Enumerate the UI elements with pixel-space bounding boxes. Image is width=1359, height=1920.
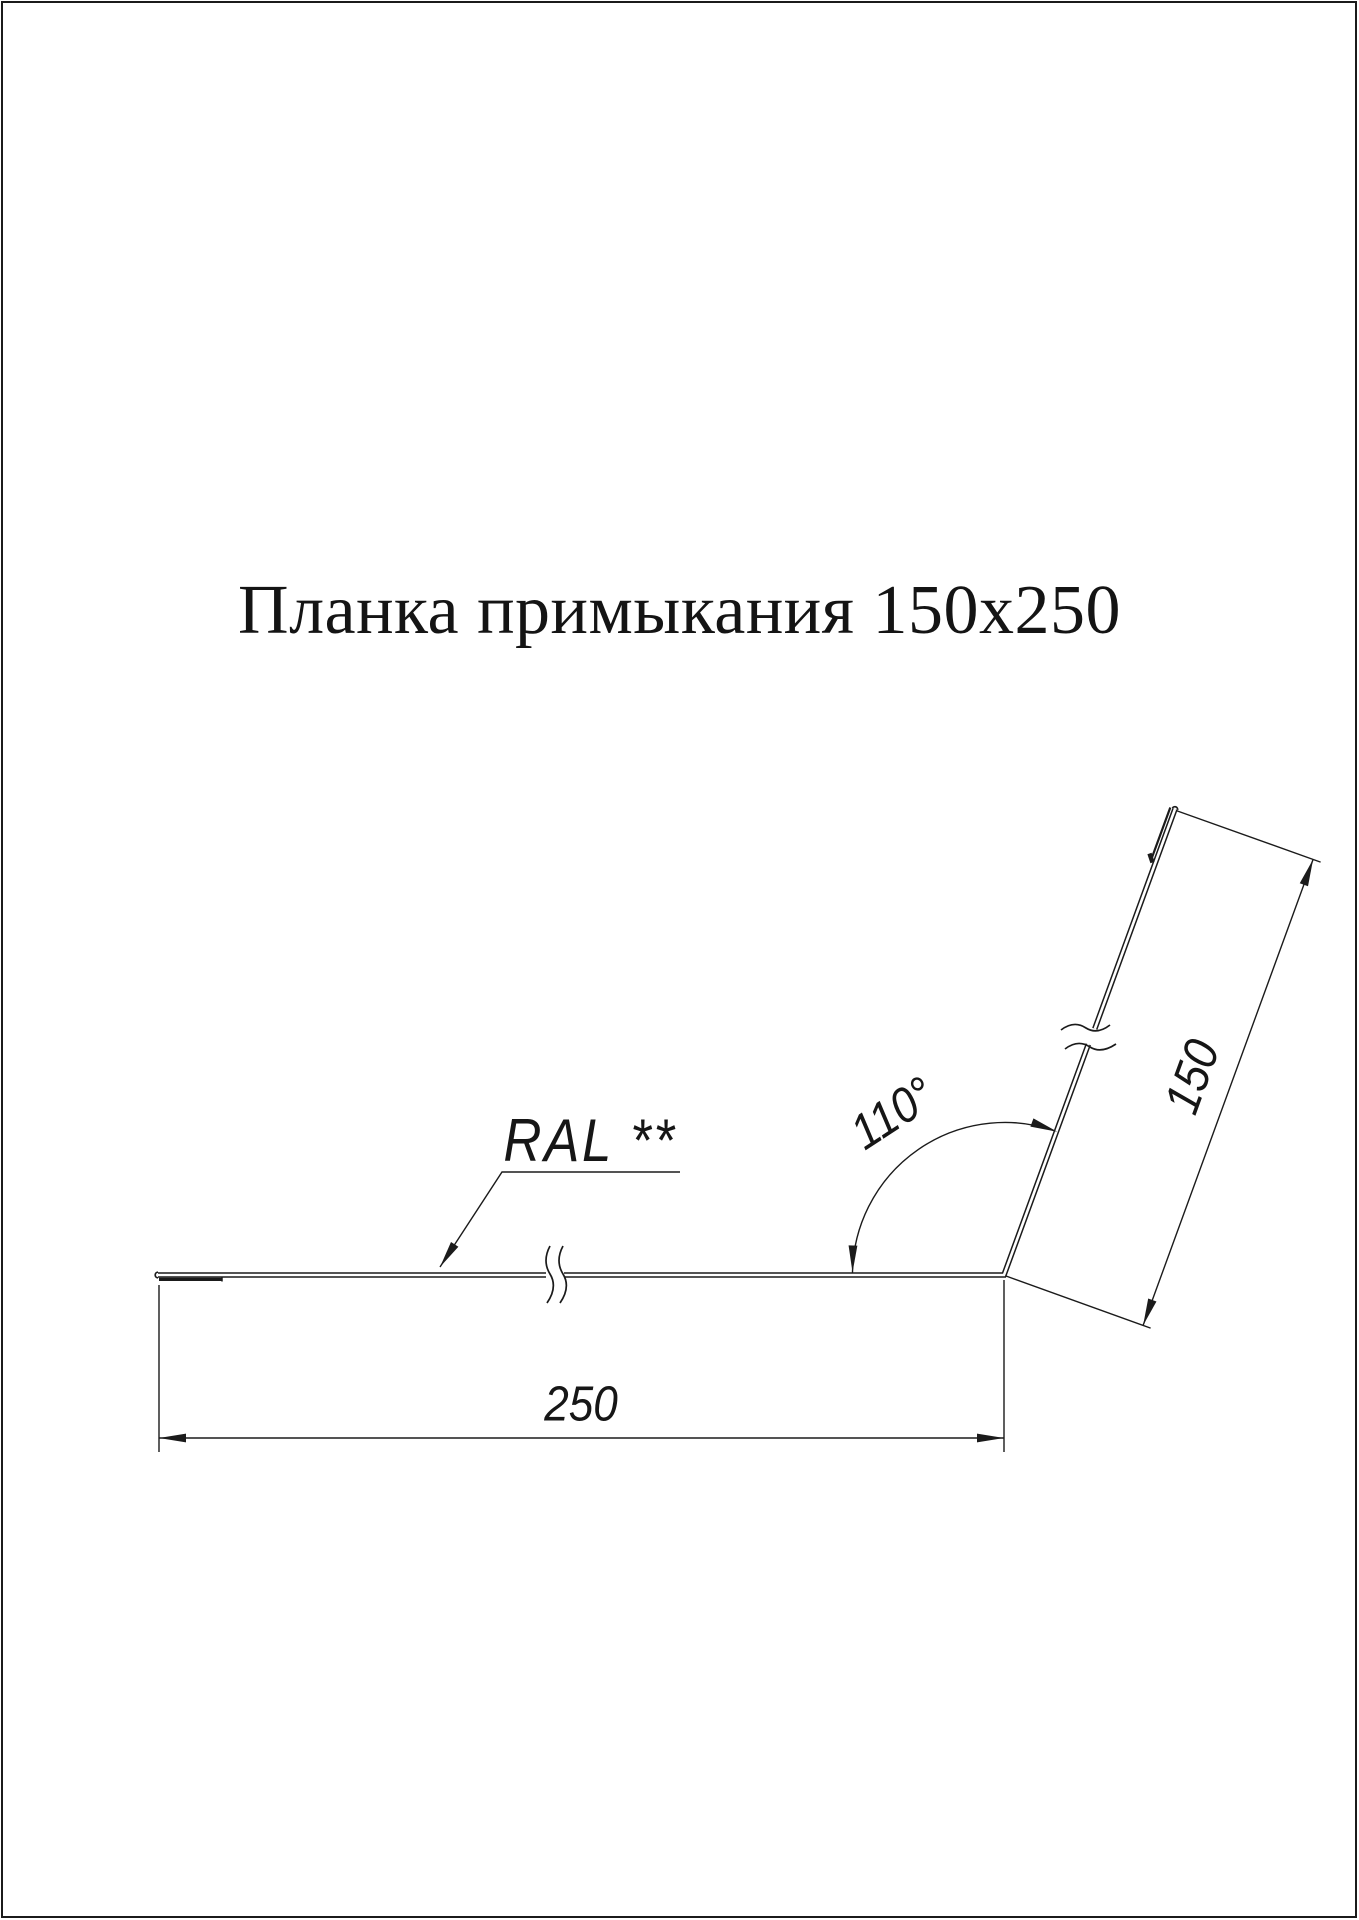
flange-break-squiggle-2 — [1065, 1043, 1116, 1049]
arrow-250-left — [159, 1434, 186, 1443]
profile-left-end-curl — [155, 1272, 158, 1278]
dimension-construction-lines — [159, 811, 1321, 1453]
arrow-ral-leader — [436, 1242, 458, 1269]
flange-break-squiggle-1 — [1061, 1024, 1110, 1030]
arrow-250-right — [977, 1434, 1004, 1443]
arrow-angle-arc-bottom — [848, 1245, 857, 1272]
base-break-squiggle-1 — [546, 1246, 553, 1303]
profile-core-white-3 — [1095, 809, 1175, 1029]
arrow-150-top — [1300, 858, 1318, 886]
arrow-150-bottom — [1139, 1299, 1157, 1327]
technical-drawing-canvas — [0, 0, 1359, 1920]
base-dimension-label: 250 — [544, 1381, 618, 1430]
extension-line-150-top — [1176, 811, 1321, 863]
profile-sheet — [155, 807, 1177, 1282]
extension-line-150-bottom — [1006, 1276, 1151, 1328]
ral-color-note-label: RAL ** — [503, 1111, 676, 1171]
arrowheads — [159, 858, 1317, 1443]
drawing-page: Планка примыкания 150x250 — [0, 0, 1359, 1920]
profile-top-hem-end-nub — [1150, 854, 1153, 863]
